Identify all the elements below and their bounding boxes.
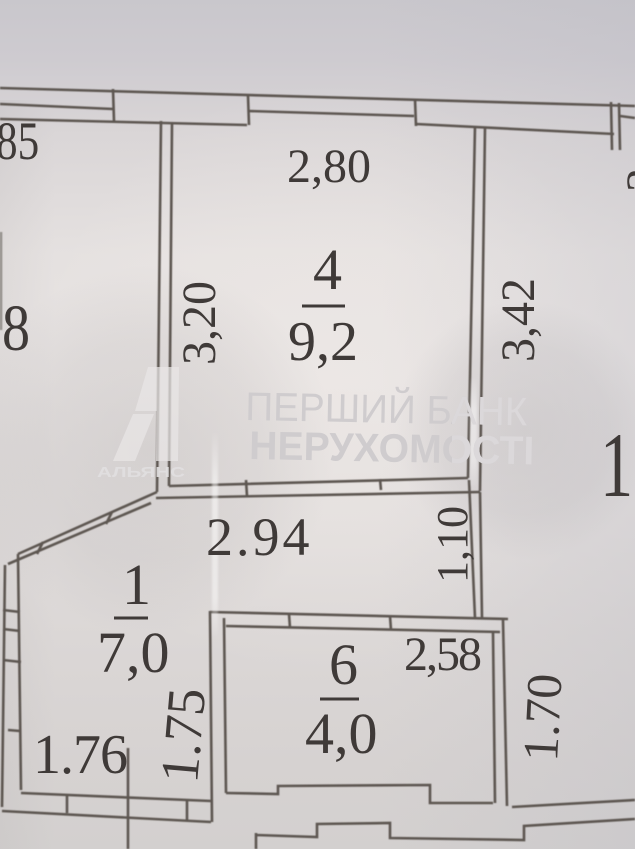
svg-text:1: 1 — [122, 552, 151, 617]
svg-text:3,42: 3,42 — [492, 278, 545, 362]
svg-text:1.75: 1.75 — [149, 686, 217, 785]
svg-text:3,: 3, — [617, 156, 635, 192]
svg-text:2.94: 2.94 — [206, 507, 313, 567]
svg-text:4: 4 — [313, 237, 342, 302]
svg-text:85: 85 — [0, 110, 39, 171]
svg-text:7,0: 7,0 — [97, 620, 170, 685]
svg-text:1: 1 — [600, 416, 633, 517]
svg-text:1,10: 1,10 — [428, 506, 477, 583]
svg-text:3,20: 3,20 — [173, 281, 226, 365]
svg-text:2,80: 2,80 — [287, 140, 371, 193]
svg-text:6: 6 — [329, 632, 358, 697]
svg-text:9,2: 9,2 — [288, 311, 358, 373]
svg-text:4,0: 4,0 — [305, 701, 378, 766]
svg-text:2,58: 2,58 — [404, 628, 481, 681]
svg-text:1.76: 1.76 — [33, 724, 127, 786]
svg-text:АЛЬЯНС: АЛЬЯНС — [97, 464, 185, 481]
svg-text:1.70: 1.70 — [512, 672, 573, 762]
svg-text:8: 8 — [2, 292, 30, 365]
